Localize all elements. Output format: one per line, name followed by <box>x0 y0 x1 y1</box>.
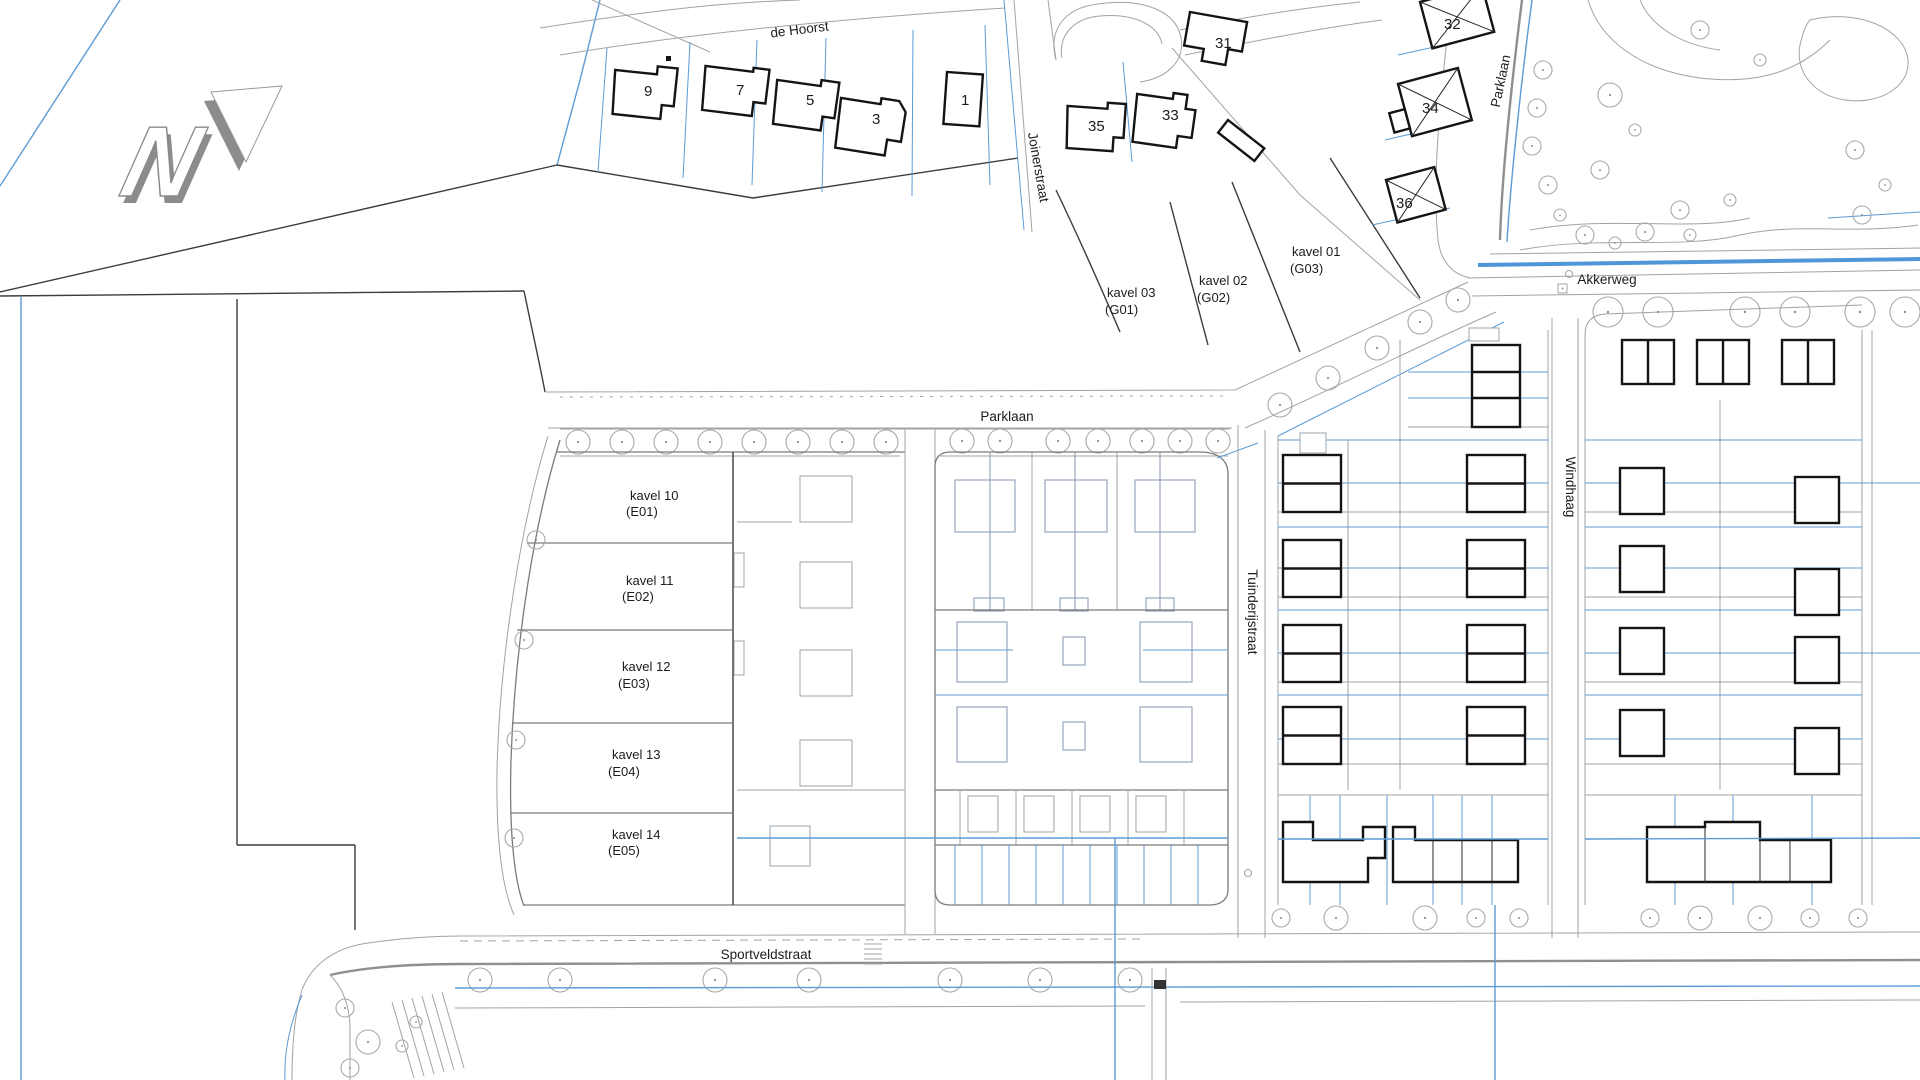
kavel-10-label: kavel 10 <box>630 488 678 503</box>
farright-rowhouses <box>1585 795 1862 905</box>
akkerweg-tree-row <box>1593 297 1920 327</box>
street-tuinderijstraat: Tuinderijstraat <box>1238 425 1265 938</box>
kavel-03-label: kavel 03 <box>1107 285 1155 300</box>
left-parcel-boundaries <box>0 0 600 1080</box>
street-label-tuinderijstraat: Tuinderijstraat <box>1245 569 1260 654</box>
street-label-sportveldstraat: Sportveldstraat <box>721 947 812 962</box>
house-number-3: 3 <box>872 111 880 128</box>
kavel-14-code: (E05) <box>608 843 640 858</box>
kavel-14-label: kavel 14 <box>612 827 660 842</box>
kavel-12-code: (E03) <box>618 676 650 691</box>
street-de-hoorst: de Hoorst <box>540 0 1005 55</box>
kavel-01-code: (G03) <box>1290 261 1323 276</box>
farright-units <box>1620 340 1839 774</box>
house-3 <box>833 92 907 158</box>
crosswalk <box>864 944 882 964</box>
street-parklaan-north: Parklaan 32 34 36 <box>1372 0 1552 278</box>
street-akkerweg: Akkerweg <box>1468 248 1920 327</box>
kavel-01-label: kavel 01 <box>1292 244 1340 259</box>
street-label-akkerweg: Akkerweg <box>1577 272 1636 287</box>
site-plan-canvas: N N de Hoorst 9 7 5 3 1 Joinerstraat <box>0 0 1920 1080</box>
midright-tree-row <box>1272 906 1528 930</box>
slope-hatching <box>392 992 464 1078</box>
house-number-36: 36 <box>1396 195 1413 212</box>
utility-box <box>1154 980 1166 989</box>
g-kavel-parcels: kavel 01 (G03) kavel 02 (G02) kavel 03 (… <box>1056 158 1420 352</box>
house-number-32: 32 <box>1444 16 1461 33</box>
southwest-trees <box>336 999 422 1077</box>
farright-tree-row <box>1641 906 1867 930</box>
house-number-34: 34 <box>1422 100 1439 117</box>
house-7 <box>700 62 769 117</box>
kavel-11-code: (E02) <box>622 589 654 604</box>
west-kavel-block: kavel 10 (E01) kavel 11 (E02) kavel 12 (… <box>497 436 935 915</box>
kavel-13-code: (E04) <box>608 764 640 779</box>
park-trees <box>1539 21 1891 249</box>
house-number-7: 7 <box>736 82 744 99</box>
house-number-35: 35 <box>1088 118 1105 135</box>
bottom-service-stub <box>1152 968 1166 1080</box>
west-block-planned-houses <box>734 476 905 866</box>
kavel-02-code: (G02) <box>1197 290 1230 305</box>
garage-building <box>1218 120 1264 161</box>
midright-rowhouses <box>1278 795 1548 905</box>
existing-houses-northeast: 35 33 31 <box>1065 12 1420 300</box>
existing-houses-north: 9 7 5 3 1 <box>611 56 983 158</box>
house-number-9: 9 <box>644 83 652 100</box>
north-arrow-icon: N N <box>112 86 282 225</box>
kavel-11-label: kavel 11 <box>626 573 673 588</box>
midright-units <box>1283 345 1525 764</box>
street-label-parklaan-main: Parklaan <box>980 409 1033 424</box>
street-label-windhaag: Windhaag <box>1563 457 1578 518</box>
middle-block <box>935 443 1258 905</box>
street-label-de-hoorst: de Hoorst <box>769 18 829 40</box>
house-number-31: 31 <box>1215 35 1232 52</box>
site-plan-map: N N de Hoorst 9 7 5 3 1 Joinerstraat <box>0 0 1920 1080</box>
house-number-1: 1 <box>961 92 969 109</box>
park-area <box>1520 0 1920 250</box>
survey-dot <box>666 56 671 61</box>
kavel-13-label: kavel 13 <box>612 747 660 762</box>
middle-block-rowhouses <box>935 790 1228 905</box>
kavel-03-code: (G01) <box>1105 302 1138 317</box>
house-number-5: 5 <box>806 92 814 109</box>
farright-block <box>1585 305 1920 930</box>
street-parklaan-main: Parklaan <box>545 282 1504 456</box>
kavel-12-label: kavel 12 <box>622 659 670 674</box>
parklaan-north-trees <box>1523 61 1552 155</box>
kavel-10-code: (E01) <box>626 504 658 519</box>
street-windhaag: Windhaag <box>1552 318 1578 938</box>
kavel-02-label: kavel 02 <box>1199 273 1247 288</box>
house-number-33: 33 <box>1162 107 1179 124</box>
